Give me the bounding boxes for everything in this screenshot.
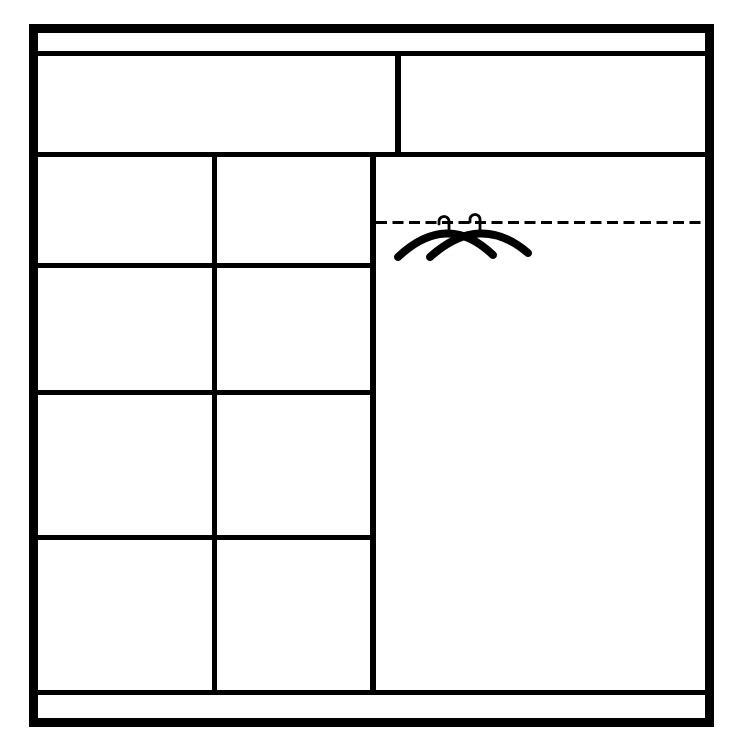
shelf-line-2 [38, 390, 376, 395]
shelf-column-divider-line [212, 152, 217, 695]
wardrobe-diagram [0, 0, 744, 750]
shelf-line-1 [38, 263, 376, 268]
wardrobe-frame [29, 24, 714, 727]
top-compartment-divider-line [395, 51, 401, 157]
shelf-line-3 [38, 535, 376, 540]
hanging-area [376, 152, 705, 695]
top-panel-strip-line [38, 51, 705, 56]
